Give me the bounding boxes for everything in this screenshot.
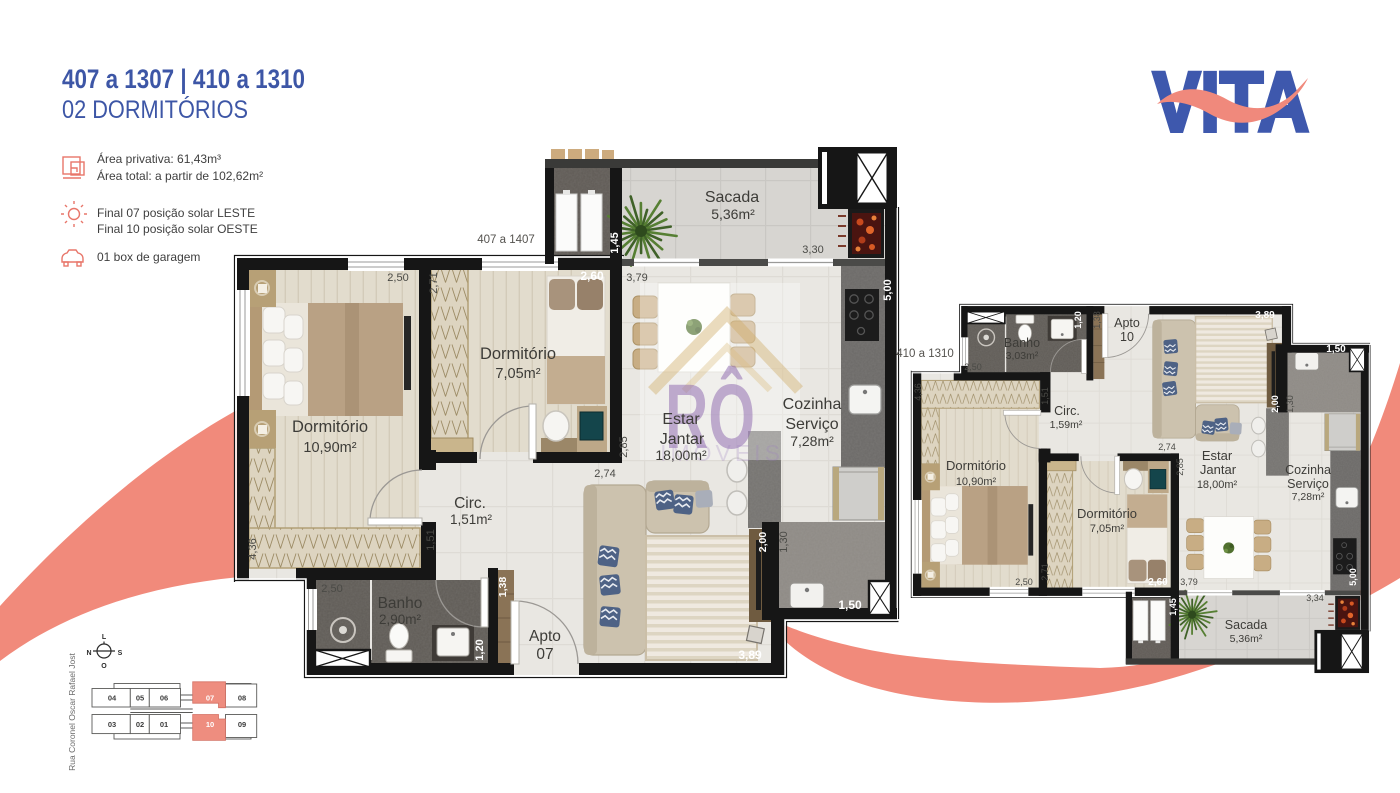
svg-text:Cozinha: Cozinha bbox=[1285, 463, 1331, 477]
svg-text:3,03m²: 3,03m² bbox=[1006, 350, 1039, 362]
svg-text:07: 07 bbox=[536, 646, 553, 663]
svg-text:2,90m²: 2,90m² bbox=[379, 612, 422, 627]
svg-text:2,00: 2,00 bbox=[1270, 395, 1280, 413]
svg-text:10: 10 bbox=[1120, 330, 1134, 344]
svg-text:Serviço: Serviço bbox=[1287, 477, 1329, 491]
svg-text:1,20: 1,20 bbox=[474, 639, 486, 660]
svg-text:Banho: Banho bbox=[1004, 336, 1040, 350]
svg-text:08: 08 bbox=[238, 694, 246, 703]
svg-text:Final 07 posição solar LESTE: Final 07 posição solar LESTE bbox=[97, 206, 255, 220]
svg-text:10: 10 bbox=[206, 720, 214, 729]
svg-text:3,79: 3,79 bbox=[626, 272, 647, 284]
svg-text:1,45: 1,45 bbox=[1168, 598, 1178, 616]
svg-text:2,74: 2,74 bbox=[594, 468, 615, 480]
svg-text:Estar: Estar bbox=[662, 411, 700, 428]
svg-text:N: N bbox=[86, 650, 91, 657]
svg-text:01: 01 bbox=[160, 720, 168, 729]
svg-text:407 a 1407: 407 a 1407 bbox=[477, 234, 535, 246]
svg-text:02 DORMITÓRIOS: 02 DORMITÓRIOS bbox=[62, 95, 248, 124]
svg-text:2,60: 2,60 bbox=[580, 269, 604, 283]
svg-text:Dormitório: Dormitório bbox=[480, 345, 556, 363]
svg-text:407 a 1307 | 410 a 1310: 407 a 1307 | 410 a 1310 bbox=[62, 64, 305, 94]
svg-text:07: 07 bbox=[206, 694, 214, 703]
svg-text:1,38: 1,38 bbox=[497, 577, 509, 598]
svg-text:06: 06 bbox=[160, 694, 168, 703]
svg-text:1,51: 1,51 bbox=[1040, 387, 1050, 405]
svg-text:10,90m²: 10,90m² bbox=[303, 440, 356, 456]
svg-text:Serviço: Serviço bbox=[785, 416, 838, 433]
svg-text:Dormitório: Dormitório bbox=[292, 418, 368, 436]
svg-text:02: 02 bbox=[136, 720, 144, 729]
svg-text:3,79: 3,79 bbox=[1180, 577, 1198, 587]
svg-text:5,00: 5,00 bbox=[882, 279, 894, 300]
svg-text:Cozinha: Cozinha bbox=[783, 396, 842, 413]
svg-text:1,51m²: 1,51m² bbox=[450, 512, 493, 527]
svg-text:2,00: 2,00 bbox=[757, 532, 769, 553]
svg-text:410 a 1310: 410 a 1310 bbox=[896, 348, 954, 360]
svg-text:5,36m²: 5,36m² bbox=[711, 206, 755, 222]
svg-text:7,05m²: 7,05m² bbox=[495, 366, 540, 382]
svg-text:Rua Coronel Oscar Rafael Jost: Rua Coronel Oscar Rafael Jost bbox=[67, 653, 77, 771]
svg-text:2,50: 2,50 bbox=[1015, 577, 1033, 587]
svg-text:Banho: Banho bbox=[378, 595, 423, 612]
svg-text:5,36m²: 5,36m² bbox=[1230, 633, 1263, 645]
svg-text:4,36: 4,36 bbox=[247, 538, 259, 559]
svg-text:1,50: 1,50 bbox=[1326, 344, 1346, 355]
svg-text:2,85: 2,85 bbox=[1175, 458, 1185, 476]
svg-text:1,59m²: 1,59m² bbox=[1050, 419, 1083, 431]
svg-text:2,85: 2,85 bbox=[618, 436, 630, 457]
svg-text:Circ.: Circ. bbox=[1054, 404, 1080, 418]
svg-text:1,51: 1,51 bbox=[425, 529, 437, 550]
svg-text:S: S bbox=[118, 650, 123, 657]
svg-text:05: 05 bbox=[136, 694, 144, 703]
svg-text:3,30: 3,30 bbox=[802, 244, 823, 256]
svg-text:09: 09 bbox=[238, 720, 246, 729]
svg-text:O: O bbox=[101, 663, 107, 670]
svg-text:04: 04 bbox=[108, 694, 117, 703]
svg-text:L: L bbox=[102, 634, 107, 641]
svg-text:03: 03 bbox=[108, 720, 116, 729]
svg-text:4,36: 4,36 bbox=[913, 383, 923, 401]
svg-text:Final 10 posição solar OESTE: Final 10 posição solar OESTE bbox=[97, 222, 258, 236]
svg-text:1,38: 1,38 bbox=[1092, 311, 1102, 329]
svg-text:2,71: 2,71 bbox=[1040, 563, 1050, 581]
svg-text:2,50: 2,50 bbox=[387, 272, 408, 284]
svg-text:5,00: 5,00 bbox=[1348, 568, 1358, 586]
svg-text:2,50: 2,50 bbox=[964, 362, 982, 372]
svg-text:Estar: Estar bbox=[1202, 448, 1233, 463]
svg-text:3,89: 3,89 bbox=[738, 648, 762, 662]
svg-text:2,50: 2,50 bbox=[321, 583, 342, 595]
svg-text:7,28m²: 7,28m² bbox=[1292, 491, 1325, 503]
svg-text:2,60: 2,60 bbox=[1148, 577, 1168, 588]
svg-text:10,90m²: 10,90m² bbox=[956, 476, 997, 488]
svg-text:Jantar: Jantar bbox=[660, 431, 705, 448]
svg-text:Jantar: Jantar bbox=[1200, 462, 1237, 477]
svg-text:1,20: 1,20 bbox=[1073, 311, 1083, 329]
svg-text:Área total: a partir de 102,62: Área total: a partir de 102,62m² bbox=[97, 168, 263, 183]
svg-text:Dormitório: Dormitório bbox=[946, 458, 1006, 473]
svg-text:Área privativa: 61,43m³: Área privativa: 61,43m³ bbox=[97, 151, 221, 166]
svg-text:Circ.: Circ. bbox=[454, 495, 486, 512]
svg-text:1,45: 1,45 bbox=[609, 232, 621, 253]
svg-text:3,89: 3,89 bbox=[1255, 310, 1275, 321]
svg-text:Sacada: Sacada bbox=[1225, 618, 1267, 632]
svg-text:7,05m²: 7,05m² bbox=[1090, 523, 1125, 535]
svg-text:7,28m²: 7,28m² bbox=[790, 433, 834, 449]
svg-text:1,30: 1,30 bbox=[778, 531, 790, 552]
svg-text:2,74: 2,74 bbox=[1158, 442, 1176, 452]
svg-text:3,34: 3,34 bbox=[1306, 593, 1324, 603]
svg-text:Dormitório: Dormitório bbox=[1077, 506, 1137, 521]
svg-text:1,30: 1,30 bbox=[1285, 395, 1295, 413]
svg-text:01 box de garagem: 01 box de garagem bbox=[97, 250, 200, 264]
svg-text:18,00m²: 18,00m² bbox=[655, 447, 707, 463]
svg-text:Apto: Apto bbox=[1114, 316, 1140, 330]
svg-text:2,71: 2,71 bbox=[428, 272, 440, 293]
svg-text:Sacada: Sacada bbox=[705, 189, 759, 206]
svg-text:18,00m²: 18,00m² bbox=[1197, 479, 1238, 491]
svg-text:1,50: 1,50 bbox=[838, 598, 862, 612]
svg-text:Apto: Apto bbox=[529, 628, 561, 645]
